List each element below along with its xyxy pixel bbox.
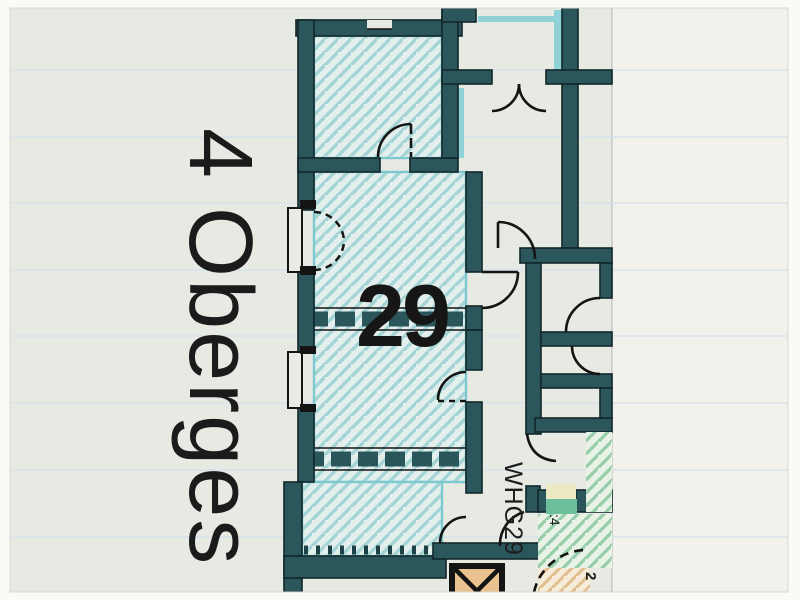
wall-top-notch (367, 20, 392, 29)
wall-h2 (541, 332, 612, 346)
wall-mid-left (298, 158, 380, 172)
wall-left-a (298, 20, 314, 210)
wall-r29-right-1 (466, 172, 482, 272)
wall-r29-right-2 (466, 330, 482, 370)
window-frame-upper (288, 208, 302, 272)
window-frame-lower (288, 352, 302, 408)
wall-right-edge-a (600, 263, 612, 298)
wall-mid-right (410, 158, 458, 172)
wall-h3 (535, 418, 612, 432)
wall-left-c (298, 406, 314, 482)
wall-r29-right-3 (466, 402, 482, 493)
apartment-corridor-label: WHG29 (499, 462, 527, 556)
doorway-green-highlight (546, 499, 577, 514)
wall-corridor-top (442, 70, 492, 84)
paper-right-margin (612, 8, 788, 592)
floor-plan-drawing: 4 Oberges 29 WHG29 :4 2 (0, 0, 800, 600)
stair-annotation: :4 (547, 514, 563, 526)
wall-top-stub (442, 8, 476, 22)
scanned-floor-plan-page: 4 Oberges 29 WHG29 :4 2 (0, 0, 800, 600)
wall-band-cap (466, 306, 482, 330)
wall-h2b (541, 374, 612, 388)
room-top-hatch (314, 36, 442, 158)
wall-right-edge-b (600, 388, 612, 418)
wall-left-b (298, 270, 314, 352)
wall-upper-vertical (562, 84, 578, 248)
stairwell-hatch-strip (586, 432, 612, 512)
room-29-lower-hatch (302, 482, 442, 556)
doorway-yellow-highlight (546, 484, 576, 500)
wall-v1 (526, 263, 541, 434)
wall-top-right (546, 70, 612, 84)
wall-bottom (284, 556, 446, 578)
corner-annotation: 2 (582, 572, 599, 580)
room-number-label: 29 (356, 266, 448, 365)
floor-side-label: 4 Oberges (170, 128, 270, 566)
